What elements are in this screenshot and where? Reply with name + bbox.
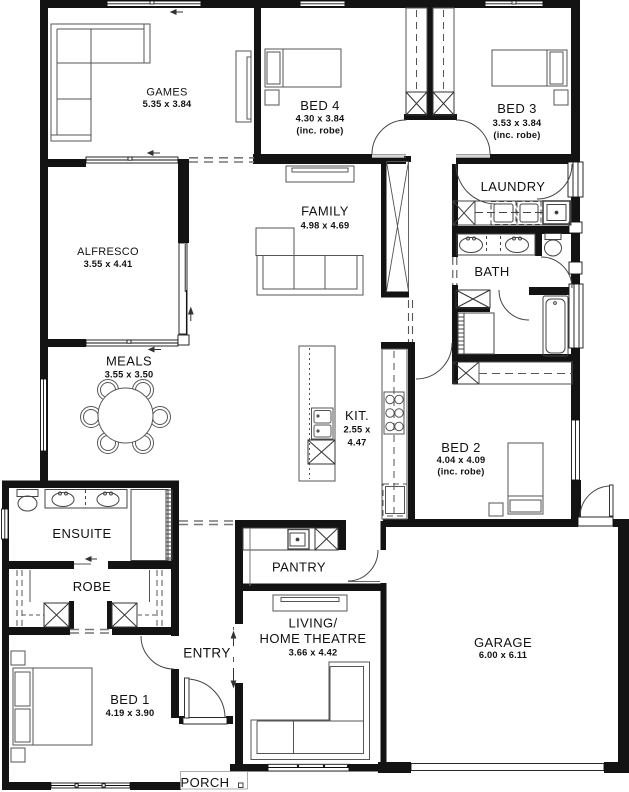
svg-text:BED 2: BED 2 [441,440,481,455]
svg-text:ENSUITE: ENSUITE [52,526,111,541]
svg-text:GAMES: GAMES [146,87,187,99]
svg-text:(inc. robe): (inc. robe) [493,130,540,140]
svg-text:BED 1: BED 1 [110,692,150,707]
svg-text:(inc. robe): (inc. robe) [437,467,484,477]
svg-text:4.47: 4.47 [348,438,367,448]
svg-text:6.00 x 6.11: 6.00 x 6.11 [479,650,527,660]
svg-text:HOME THEATRE: HOME THEATRE [260,631,367,646]
svg-text:4.98 x 4.69: 4.98 x 4.69 [301,221,350,231]
svg-text:3.55 x 4.41: 3.55 x 4.41 [84,259,133,269]
svg-text:PORCH: PORCH [181,775,230,790]
svg-text:KIT.: KIT. [345,408,369,423]
svg-text:3.55 x 3.50: 3.55 x 3.50 [105,370,154,380]
svg-text:LIVING/: LIVING/ [288,616,337,631]
svg-text:3.66 x 4.42: 3.66 x 4.42 [289,648,338,658]
svg-text:4.19 x 3.90: 4.19 x 3.90 [106,708,155,718]
svg-text:GARAGE: GARAGE [474,635,532,650]
svg-text:4.30 x 3.84: 4.30 x 3.84 [296,114,345,124]
svg-text:FAMILY: FAMILY [301,204,349,219]
svg-text:BED 3: BED 3 [497,101,537,116]
svg-text:2.55 x: 2.55 x [343,425,371,435]
svg-text:ENTRY: ENTRY [183,646,231,661]
svg-text:BED 4: BED 4 [300,98,340,113]
svg-text:ALFRESCO: ALFRESCO [77,246,139,258]
svg-text:4.04 x 4.09: 4.04 x 4.09 [437,455,486,465]
svg-text:BATH: BATH [474,264,509,279]
svg-text:LAUNDRY: LAUNDRY [481,179,546,194]
svg-text:3.53 x 3.84: 3.53 x 3.84 [493,118,542,128]
svg-text:(inc. robe): (inc. robe) [296,126,343,136]
svg-text:PANTRY: PANTRY [272,560,326,575]
svg-text:5.35 x 3.84: 5.35 x 3.84 [143,99,192,109]
svg-text:ROBE: ROBE [73,579,111,594]
svg-text:MEALS: MEALS [106,354,152,369]
